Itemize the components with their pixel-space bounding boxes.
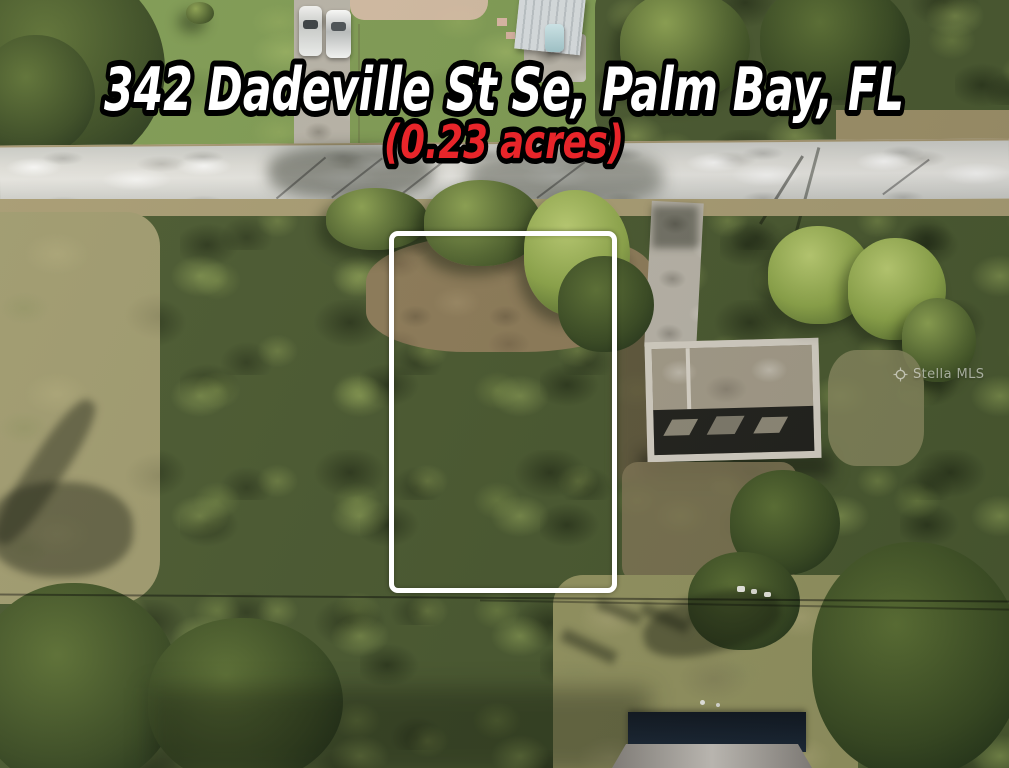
pool-furniture-dot (700, 700, 705, 705)
tree-shadow (0, 482, 133, 577)
tree (812, 542, 1009, 768)
watermark-text: Stella MLS (913, 367, 984, 382)
debris-dot (764, 592, 771, 597)
aerial-photo: Stella MLS 342 Dadeville St Se, Palm Bay… (0, 0, 1009, 768)
bottom-darkening (150, 688, 650, 768)
headline-overlay: 342 Dadeville St Se, Palm Bay, FL (0.23 … (0, 0, 1009, 200)
shadow-on-driveway (652, 206, 698, 248)
debris (753, 417, 788, 434)
watermark: Stella MLS (893, 367, 984, 382)
mls-logo-icon (893, 367, 908, 382)
lot-boundary-outline (389, 231, 617, 593)
foundation-slab (652, 345, 814, 411)
debris (663, 419, 698, 436)
house-gable-roof (612, 744, 812, 768)
foundation-building (644, 338, 821, 463)
foundation-dark-interior (653, 406, 814, 455)
debris-dot (751, 589, 757, 594)
debris (707, 416, 745, 435)
pool-furniture-dot (716, 703, 720, 707)
debris-dot (737, 586, 745, 592)
lot-size-subtitle: (0.23 acres) (384, 115, 624, 169)
